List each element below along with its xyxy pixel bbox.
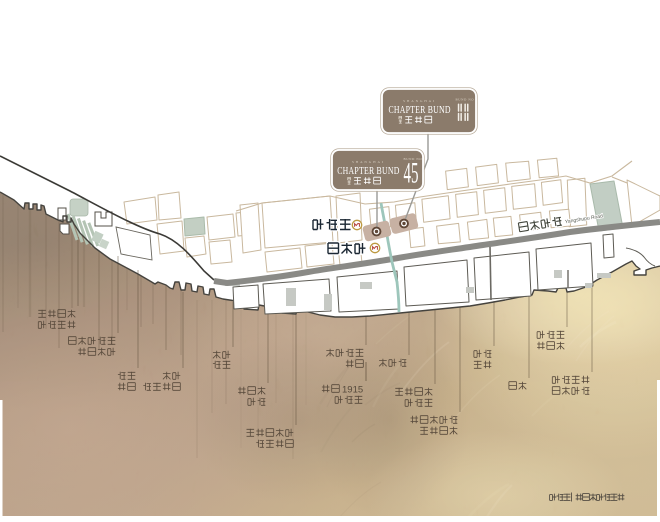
svg-text:1915: 1915 [342,385,363,396]
svg-text:SHANGHAI: SHANGHAI [403,99,436,103]
svg-text:CHAPTER BUND: CHAPTER BUND [388,104,451,115]
svg-text:BUND NO: BUND NO [456,98,475,102]
svg-text:45: 45 [404,157,419,190]
svg-text:SHANGHAI: SHANGHAI [352,160,385,164]
svg-text:CHAPTER BUND: CHAPTER BUND [337,165,400,176]
